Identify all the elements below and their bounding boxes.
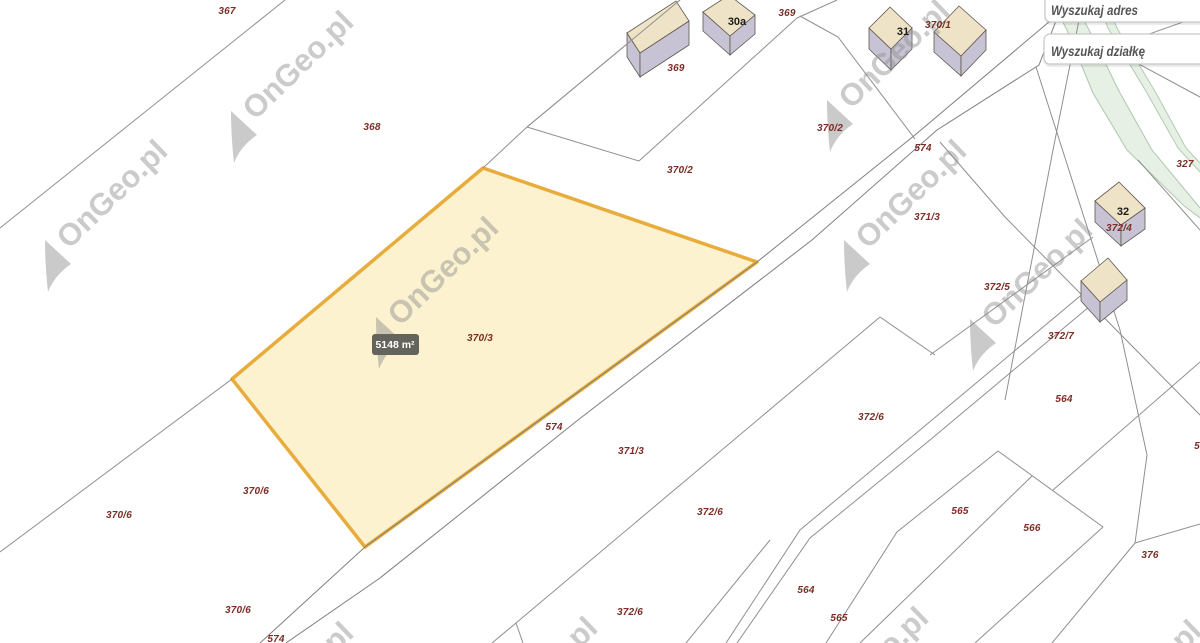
svg-text:32: 32 bbox=[1117, 206, 1129, 218]
svg-text:367: 367 bbox=[218, 6, 236, 17]
svg-text:5148 m²: 5148 m² bbox=[375, 339, 415, 351]
svg-text:372/6: 372/6 bbox=[858, 412, 884, 423]
svg-text:30a: 30a bbox=[728, 16, 747, 28]
svg-text:370/1: 370/1 bbox=[925, 20, 951, 31]
svg-text:565: 565 bbox=[951, 506, 969, 517]
svg-text:31: 31 bbox=[897, 26, 909, 38]
svg-text:370/6: 370/6 bbox=[225, 605, 251, 616]
svg-text:369: 369 bbox=[778, 8, 796, 19]
svg-text:574: 574 bbox=[545, 422, 563, 433]
svg-text:372/6: 372/6 bbox=[617, 607, 643, 618]
svg-text:370/6: 370/6 bbox=[106, 510, 132, 521]
svg-text:565: 565 bbox=[830, 613, 848, 624]
svg-text:327: 327 bbox=[1176, 159, 1194, 170]
svg-text:574: 574 bbox=[267, 634, 285, 643]
svg-text:372/6: 372/6 bbox=[697, 507, 723, 518]
svg-text:564: 564 bbox=[1055, 394, 1073, 405]
svg-text:370/6: 370/6 bbox=[243, 486, 269, 497]
svg-text:371/3: 371/3 bbox=[618, 446, 644, 457]
svg-text:566: 566 bbox=[1023, 523, 1041, 534]
svg-text:372/5: 372/5 bbox=[984, 282, 1010, 293]
svg-text:564: 564 bbox=[797, 585, 815, 596]
svg-text:370/3: 370/3 bbox=[467, 333, 493, 344]
svg-text:574: 574 bbox=[914, 143, 932, 154]
svg-text:Wyszukaj adres: Wyszukaj adres bbox=[1051, 2, 1138, 18]
svg-text:368: 368 bbox=[363, 122, 381, 133]
svg-text:5: 5 bbox=[1194, 441, 1200, 452]
svg-text:Wyszukaj działkę: Wyszukaj działkę bbox=[1051, 43, 1145, 59]
svg-text:370/2: 370/2 bbox=[817, 123, 843, 134]
svg-text:376: 376 bbox=[1141, 550, 1159, 561]
svg-text:372/7: 372/7 bbox=[1048, 331, 1074, 342]
svg-text:369: 369 bbox=[667, 63, 685, 74]
svg-text:371/3: 371/3 bbox=[914, 212, 940, 223]
svg-text:372/4: 372/4 bbox=[1106, 223, 1132, 234]
svg-text:370/2: 370/2 bbox=[667, 165, 693, 176]
